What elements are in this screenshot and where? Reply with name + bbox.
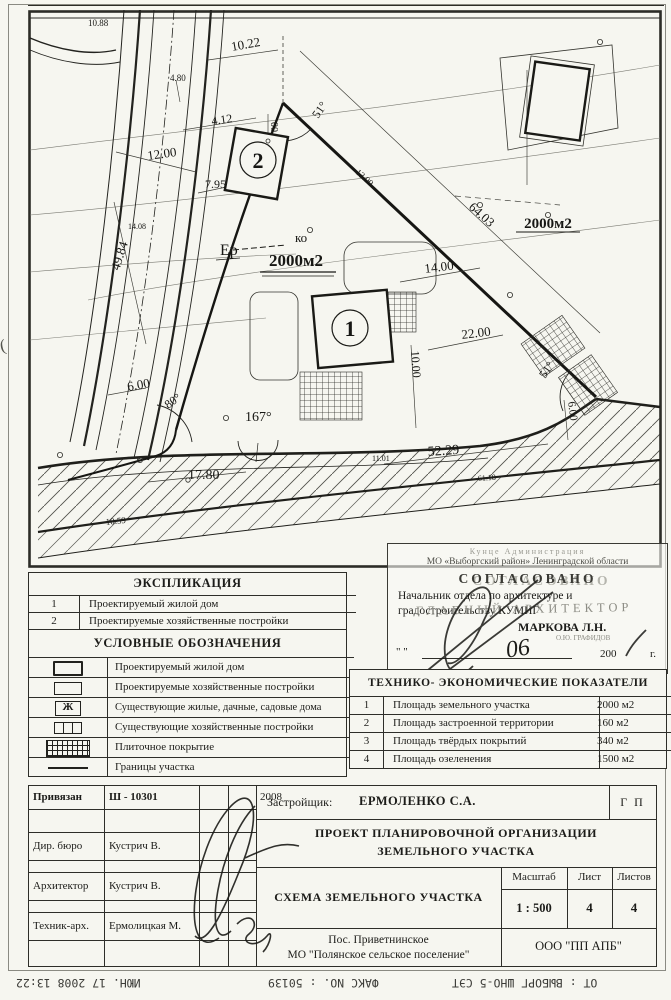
tep-row-num: 3 <box>350 732 384 751</box>
legend-symbol-existing-outbuilding <box>29 717 108 738</box>
legend-symbol-tiled-surface <box>29 737 108 758</box>
tep-row-num: 4 <box>350 750 384 769</box>
tep-row-label: Площадь застроенной территории <box>383 714 600 733</box>
tep-row-num: 1 <box>350 696 384 715</box>
map-dimension-label: 17.80 <box>188 468 220 483</box>
map-dimension-label: 00 <box>268 122 279 132</box>
legend-label: Плиточное покрытие <box>107 737 354 758</box>
tep-row-num: 2 <box>350 714 384 733</box>
map-dimension-label: 52.29 <box>427 443 459 460</box>
tep-title: ТЕХНИКО- ЭКОНОМИЧЕСКИЕ ПОКАЗАТЕЛИ <box>350 670 666 696</box>
map-dimension-label: 61.18 <box>478 473 497 483</box>
map-dimension-label: 10.22 <box>230 34 261 54</box>
tep-row-label: Площадь озеленения <box>383 750 600 769</box>
legend-symbol-plot-boundary <box>29 757 108 777</box>
map-dimension-label: 2000м2 <box>269 251 323 270</box>
legend-title: УСЛОВНЫЕ ОБОЗНАЧЕНИЯ <box>29 629 346 658</box>
tb-sheets-label: Листов <box>612 867 656 889</box>
approval-stamp: Кунце Администрация МО «Выборгский район… <box>387 543 668 674</box>
legend-symbol-projected-outbuilding <box>29 677 108 698</box>
building-2-number: 2 <box>253 148 264 173</box>
scanned-site-plan-sheet: ( <box>0 0 671 1000</box>
fax-number: ФАКС NO. : 50139 <box>268 976 379 990</box>
map-dimension-label: 80° <box>162 390 184 411</box>
tep-row-value: 340 м2 <box>589 732 671 751</box>
explication-row-num: 2 <box>29 612 80 630</box>
titleblock-signatures <box>159 786 319 966</box>
scan-artifact: ( <box>0 336 8 357</box>
fax-timestamp: ИЮН. 17 2008 13:22 <box>16 976 141 990</box>
tep-row-value: 2000 м2 <box>589 696 671 715</box>
tep-row-label: Площадь земельного участка <box>383 696 600 715</box>
tb-organization: ООО "ПП АПБ" <box>501 928 656 966</box>
map-dimension-label: 4.12 <box>210 111 233 128</box>
map-dimension-label: 12.00 <box>146 144 177 163</box>
map-dimension-label: 4.80 <box>170 73 186 83</box>
tb-scale-label: Масштаб <box>501 867 567 889</box>
explication-row-num: 1 <box>29 595 80 613</box>
explication-legend-table: ЭКСПЛИКАЦИЯ 1 Проектируемый жилой дом 2 … <box>28 572 347 777</box>
tb-role-director: Дир. бюро <box>33 836 103 858</box>
legend-symbol-projected-house <box>29 657 108 678</box>
legend-label: Существующие хозяйственные постройки <box>107 717 354 738</box>
stamp-signature <box>388 544 667 673</box>
legend-label: Проектируемые хозяйственные постройки <box>107 677 354 698</box>
map-dimension-label: 2000м2 <box>524 216 572 232</box>
legend-label: Проектируемый жилой дом <box>107 657 354 678</box>
map-dimension-label: 14.08 <box>128 222 146 231</box>
explication-row-label: Проектируемые хозяйственные постройки <box>79 612 356 630</box>
map-dimension-label: 10.88 <box>88 18 109 28</box>
map-dimension-label: 64.03 <box>466 199 498 230</box>
tb-sheet-label: Лист <box>567 867 612 889</box>
map-dimension-label: 6.00 <box>126 375 151 394</box>
tb-developer-name: ЕРМОЛЕНКО С.А. <box>359 792 579 812</box>
legend-label: Границы участка <box>107 757 354 777</box>
fax-sender: ОТ : ВЫБОРГ ШНО-5 СЭТ <box>452 976 597 990</box>
site-plan-map: 2 1 10.8810.224.804.1212.007.950051°13.0… <box>28 10 662 568</box>
map-dimension-label: 22.00 <box>461 324 492 342</box>
tep-row-value: 160 м2 <box>589 714 671 733</box>
map-dimension-label: 7.95 <box>205 177 226 191</box>
tb-sheet-value: 4 <box>567 889 612 928</box>
map-dimension-label: 51° <box>309 99 330 121</box>
building-1-number: 1 <box>345 316 356 341</box>
existing-building-outline <box>525 62 589 141</box>
tb-sheets-value: 4 <box>612 889 656 928</box>
road-northwest <box>30 10 224 462</box>
map-dimension-label: 167° <box>245 410 272 425</box>
tb-anchored-label: Привязан <box>33 788 103 808</box>
map-top-border <box>28 5 664 6</box>
tep-row-value: 1500 м2 <box>589 750 671 769</box>
tb-stage-code: Г П <box>609 792 656 812</box>
explication-title: ЭКСПЛИКАЦИЯ <box>29 573 346 595</box>
map-dimension-label: ко <box>295 230 307 245</box>
tep-row-label: Площадь твёрдых покрытий <box>383 732 600 751</box>
legend-label: Существующие жилые, дачные, садовые дома <box>107 697 354 718</box>
tb-role-architect: Архитектор <box>33 876 103 898</box>
title-block: Привязан Ш - 10301 2008 Дир. бюро Кустри… <box>28 785 657 967</box>
explication-row-label: Проектируемый жилой дом <box>79 595 356 613</box>
map-dimension-label: 11.01 <box>372 454 390 463</box>
legend-symbol-existing-house: Ж <box>29 697 108 718</box>
map-dimension-label: Ер <box>220 242 238 259</box>
tb-role-technician: Техник-арх. <box>33 916 103 938</box>
tech-economic-indicators-table: ТЕХНИКО- ЭКОНОМИЧЕСКИЕ ПОКАЗАТЕЛИ 1 Площ… <box>349 669 667 769</box>
map-dimension-label: 10.00 <box>408 350 424 378</box>
tb-scale-value: 1 : 500 <box>501 889 567 928</box>
